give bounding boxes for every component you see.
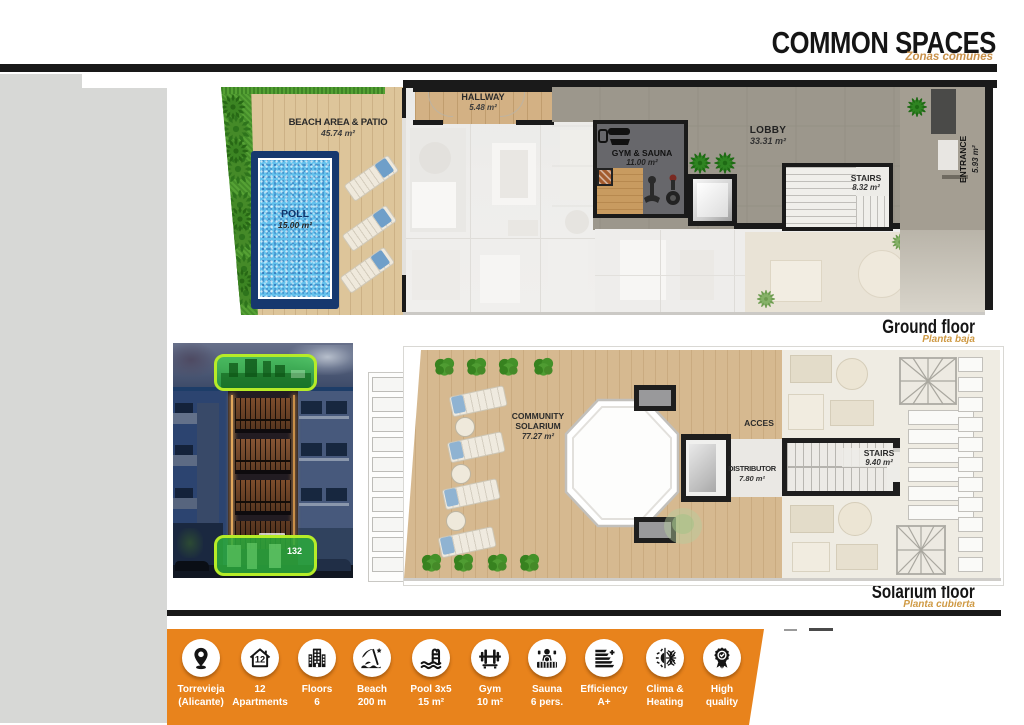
svg-text:12: 12 <box>255 655 265 665</box>
